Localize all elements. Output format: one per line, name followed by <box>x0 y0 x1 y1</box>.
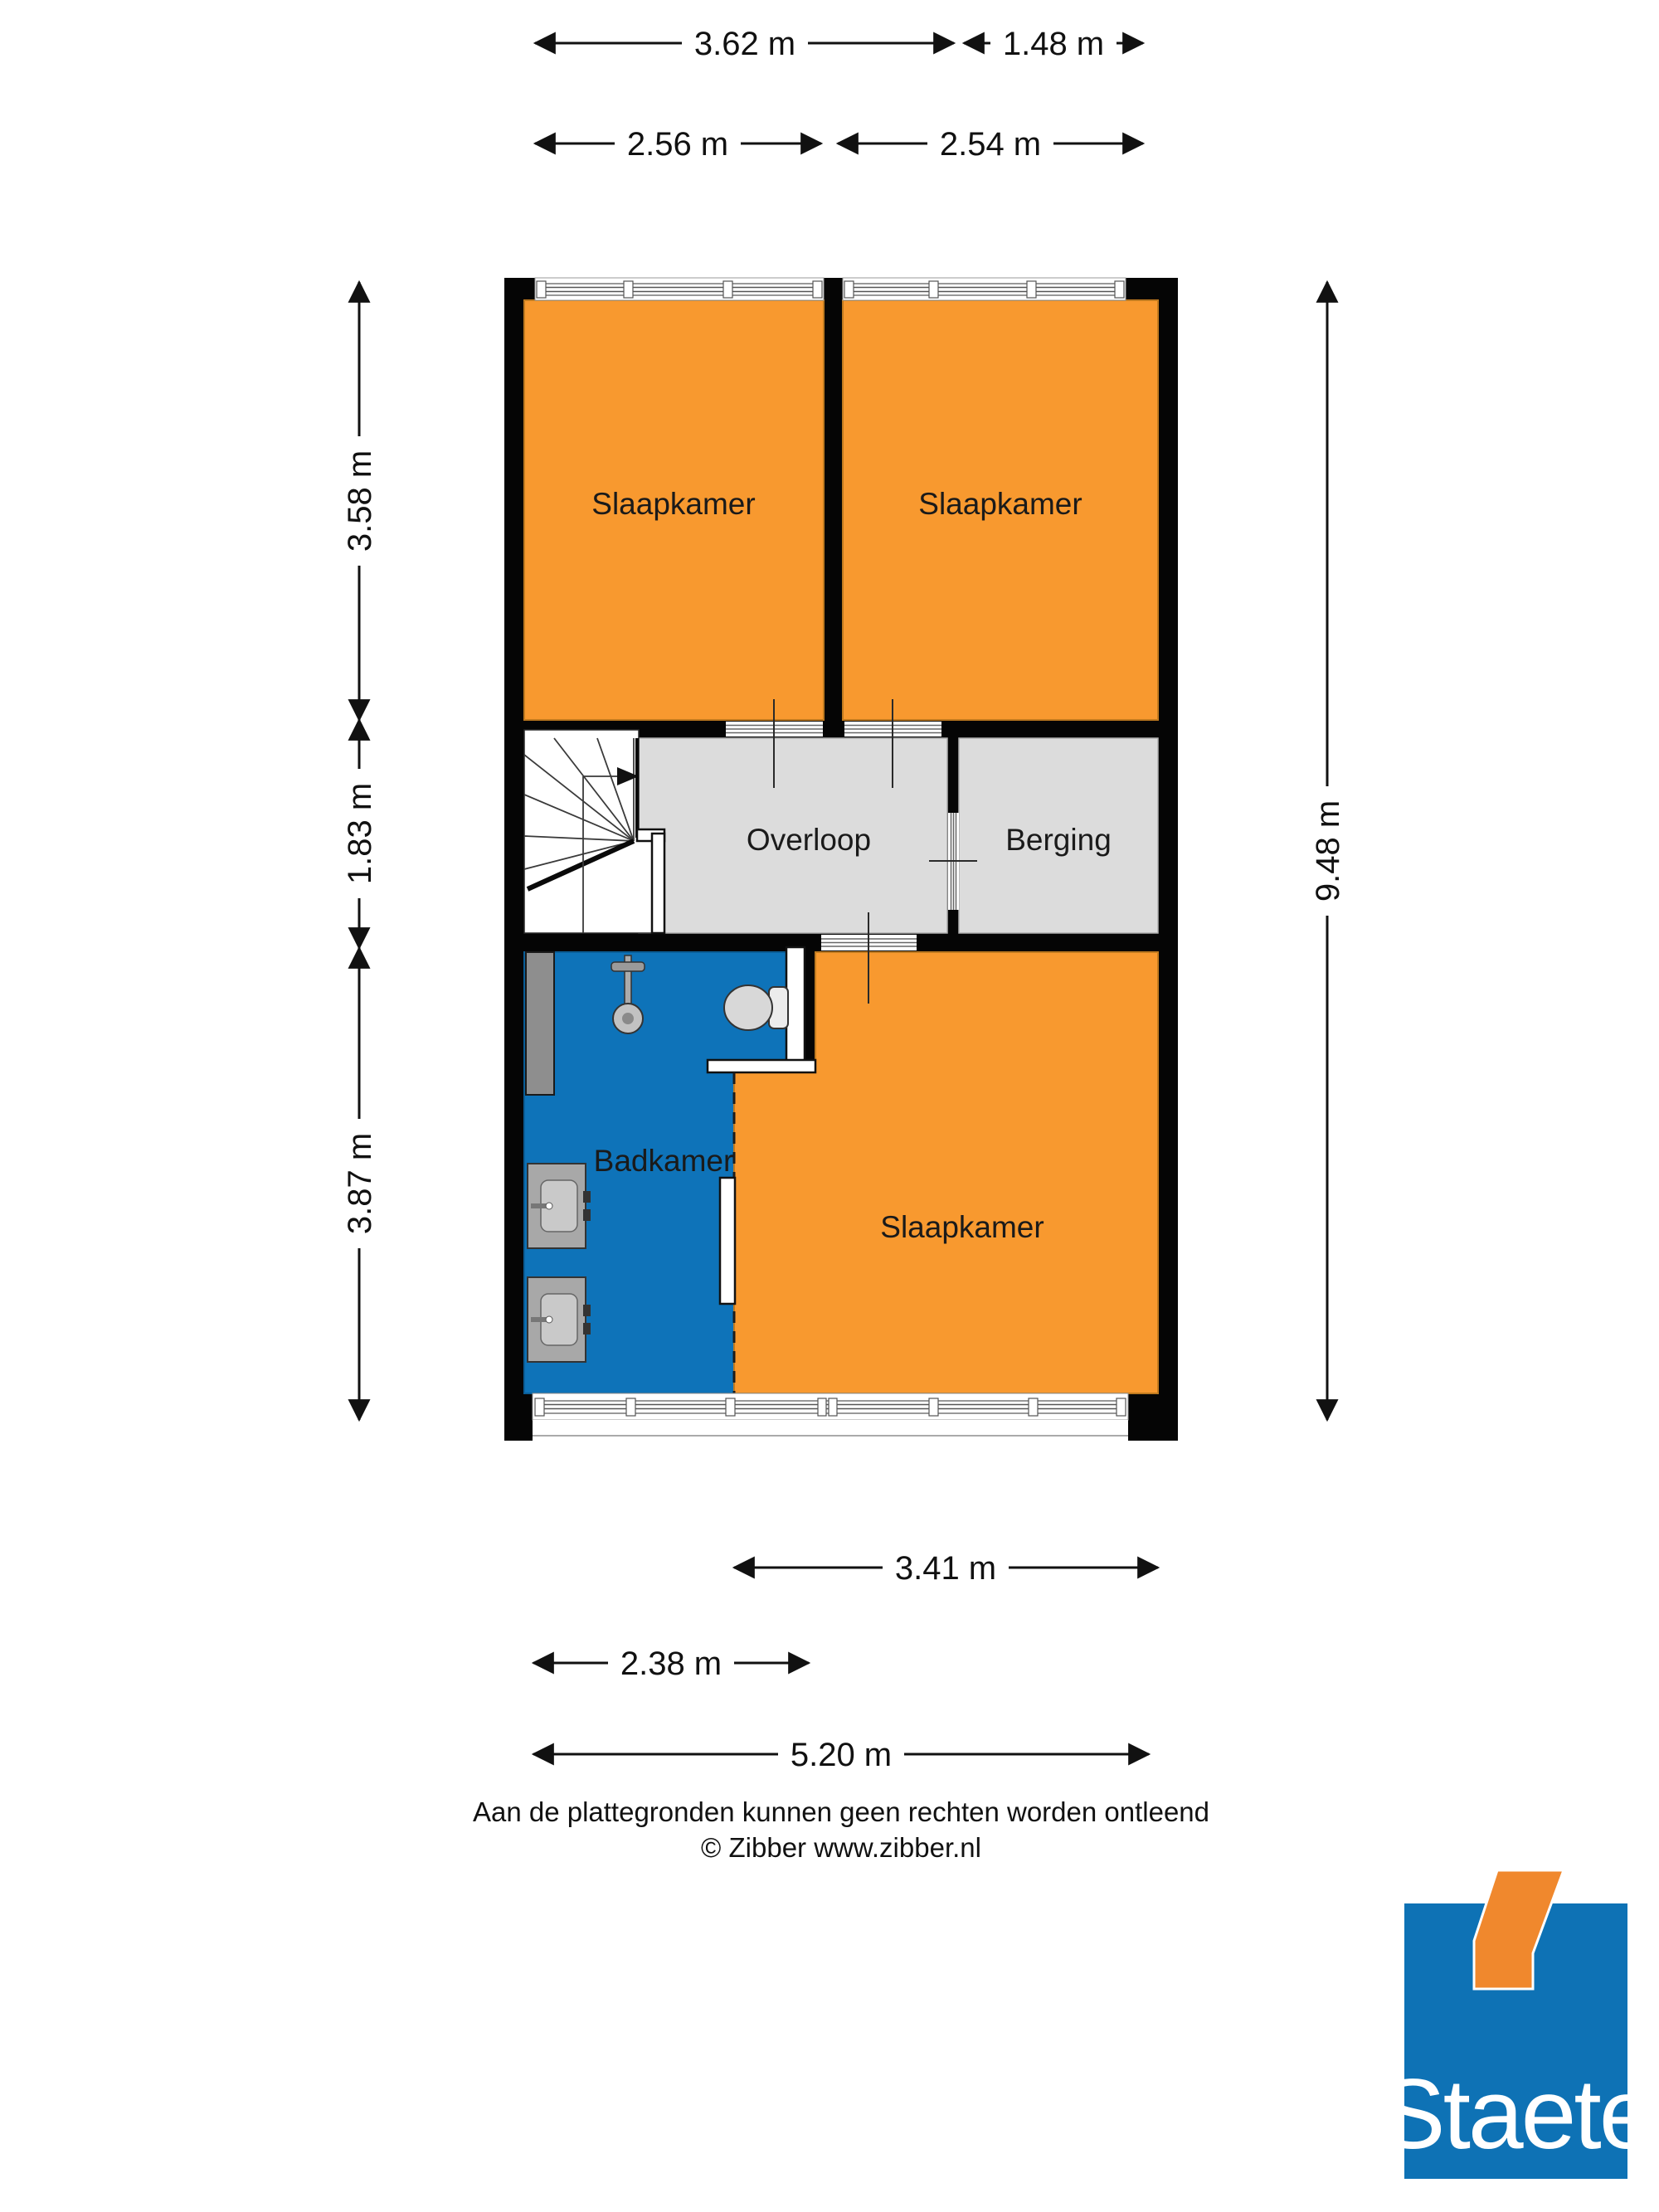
dim-left-1-83: 1.83 m <box>340 720 378 948</box>
dim-left-3-58: 3.58 m <box>340 282 378 720</box>
window-bottom <box>533 1393 1128 1437</box>
sink-icon <box>528 1164 591 1248</box>
svg-text:3.41 m: 3.41 m <box>895 1550 996 1587</box>
svg-text:2.54 m: 2.54 m <box>940 126 1041 163</box>
dim-top-2-56: 2.56 m <box>535 124 821 163</box>
dim-bottom-2-38: 2.38 m <box>533 1644 809 1682</box>
svg-text:9.48 m: 9.48 m <box>1310 800 1346 902</box>
door-leaf <box>720 1178 735 1304</box>
svg-text:2.56 m: 2.56 m <box>627 126 728 163</box>
svg-text:5.20 m: 5.20 m <box>791 1737 892 1773</box>
toilet-icon <box>724 985 788 1030</box>
stair-rail-wall-v <box>652 834 664 933</box>
bottom-right-corner-wall <box>1128 1393 1178 1441</box>
floorplan-canvas: Slaapkamer Slaapkamer Overloop Berging B… <box>0 0 1659 2212</box>
window-top-right <box>843 278 1126 300</box>
floorplan: Slaapkamer Slaapkamer Overloop Berging B… <box>504 278 1178 1441</box>
room-label-overloop: Overloop <box>747 823 871 857</box>
room-label-slaapkamer-3: Slaapkamer <box>880 1210 1044 1244</box>
staete-logo: Staete <box>1379 1870 1652 2179</box>
room-label-slaapkamer-2: Slaapkamer <box>918 487 1082 521</box>
dim-right-9-48: 9.48 m <box>1308 282 1346 1420</box>
room-label-slaapkamer-1: Slaapkamer <box>591 487 755 521</box>
dim-top-2-54: 2.54 m <box>838 124 1143 163</box>
room-label-berging: Berging <box>1005 823 1112 857</box>
credit-text: © Zibber www.zibber.nl <box>701 1832 981 1863</box>
sink-icon <box>528 1277 591 1362</box>
logo-wordmark: Staete <box>1379 2059 1652 2170</box>
svg-text:3.87 m: 3.87 m <box>342 1133 378 1234</box>
toilet-alcove-wall-v <box>786 947 805 1063</box>
svg-text:1.48 m: 1.48 m <box>1003 26 1104 62</box>
svg-text:3.58 m: 3.58 m <box>342 450 378 552</box>
room-label-badkamer: Badkamer <box>594 1144 734 1178</box>
stairs <box>524 730 652 933</box>
disclaimer-text: Aan de plattegronden kunnen geen rechten… <box>473 1796 1209 1827</box>
footer: Aan de plattegronden kunnen geen rechten… <box>473 1796 1209 1863</box>
svg-text:3.62 m: 3.62 m <box>694 26 795 62</box>
dim-bottom-5-20: 5.20 m <box>533 1735 1149 1773</box>
dim-top-3-62: 3.62 m <box>535 24 954 62</box>
toilet-alcove-wall-h <box>708 1060 815 1072</box>
dim-left-3-87: 3.87 m <box>340 948 378 1420</box>
duct-block <box>526 952 554 1095</box>
window-top-left <box>535 278 824 300</box>
dim-top-1-48: 1.48 m <box>964 24 1143 62</box>
svg-text:1.83 m: 1.83 m <box>342 783 378 884</box>
svg-text:2.38 m: 2.38 m <box>620 1646 722 1682</box>
dim-bottom-3-41: 3.41 m <box>734 1548 1158 1587</box>
bottom-left-corner-wall <box>504 1393 533 1441</box>
